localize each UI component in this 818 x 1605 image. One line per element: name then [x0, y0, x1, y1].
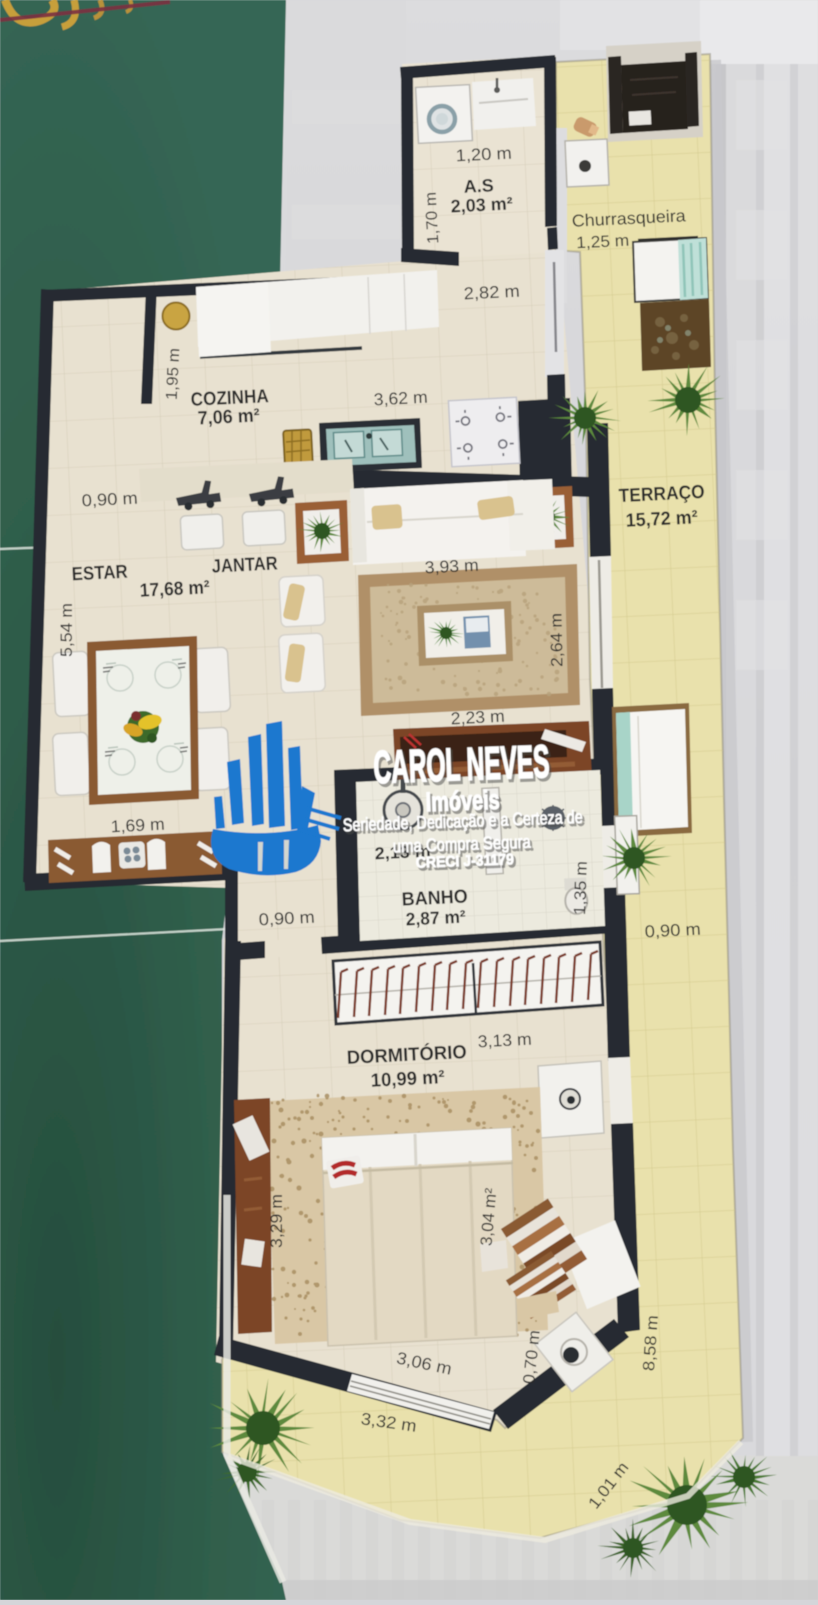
svg-text:ESTAR: ESTAR — [71, 562, 128, 586]
svg-text:2,82 m: 2,82 m — [463, 282, 520, 304]
svg-text:0,90 m: 0,90 m — [258, 908, 315, 930]
svg-text:1,25 m: 1,25 m — [576, 232, 630, 253]
svg-text:3,93 m: 3,93 m — [424, 556, 479, 578]
svg-text:TERRAÇO: TERRAÇO — [618, 482, 705, 507]
svg-text:3,29 m: 3,29 m — [268, 1194, 286, 1248]
svg-text:17,68 m²: 17,68 m² — [139, 577, 210, 601]
svg-text:2,23 m: 2,23 m — [450, 707, 505, 729]
svg-text:0,90 m: 0,90 m — [644, 920, 701, 942]
svg-text:2,03 m²: 2,03 m² — [450, 194, 513, 217]
svg-text:1,69 m: 1,69 m — [110, 815, 165, 837]
svg-text:10,99 m²: 10,99 m² — [370, 1067, 445, 1092]
svg-text:7,06 m²: 7,06 m² — [197, 406, 260, 430]
svg-text:15,72 m²: 15,72 m² — [625, 507, 698, 531]
svg-text:5,54 m: 5,54 m — [58, 603, 76, 657]
svg-text:JANTAR: JANTAR — [211, 553, 278, 577]
svg-text:0,90 m: 0,90 m — [81, 489, 138, 511]
svg-text:A.S: A.S — [463, 175, 494, 196]
svg-text:CRECI J-31179: CRECI J-31179 — [416, 851, 515, 871]
svg-text:1,95 m: 1,95 m — [164, 348, 184, 401]
svg-text:2,87 m²: 2,87 m² — [405, 907, 466, 930]
svg-text:1,35 m: 1,35 m — [571, 861, 591, 916]
svg-text:CAROL NEVES: CAROL NEVES — [373, 735, 551, 793]
svg-text:1,20 m: 1,20 m — [455, 144, 512, 166]
svg-text:3,62 m: 3,62 m — [373, 388, 428, 410]
svg-text:1,70 m: 1,70 m — [423, 192, 443, 245]
svg-text:3,13 m: 3,13 m — [477, 1030, 532, 1052]
svg-text:2,64 m: 2,64 m — [548, 613, 567, 667]
